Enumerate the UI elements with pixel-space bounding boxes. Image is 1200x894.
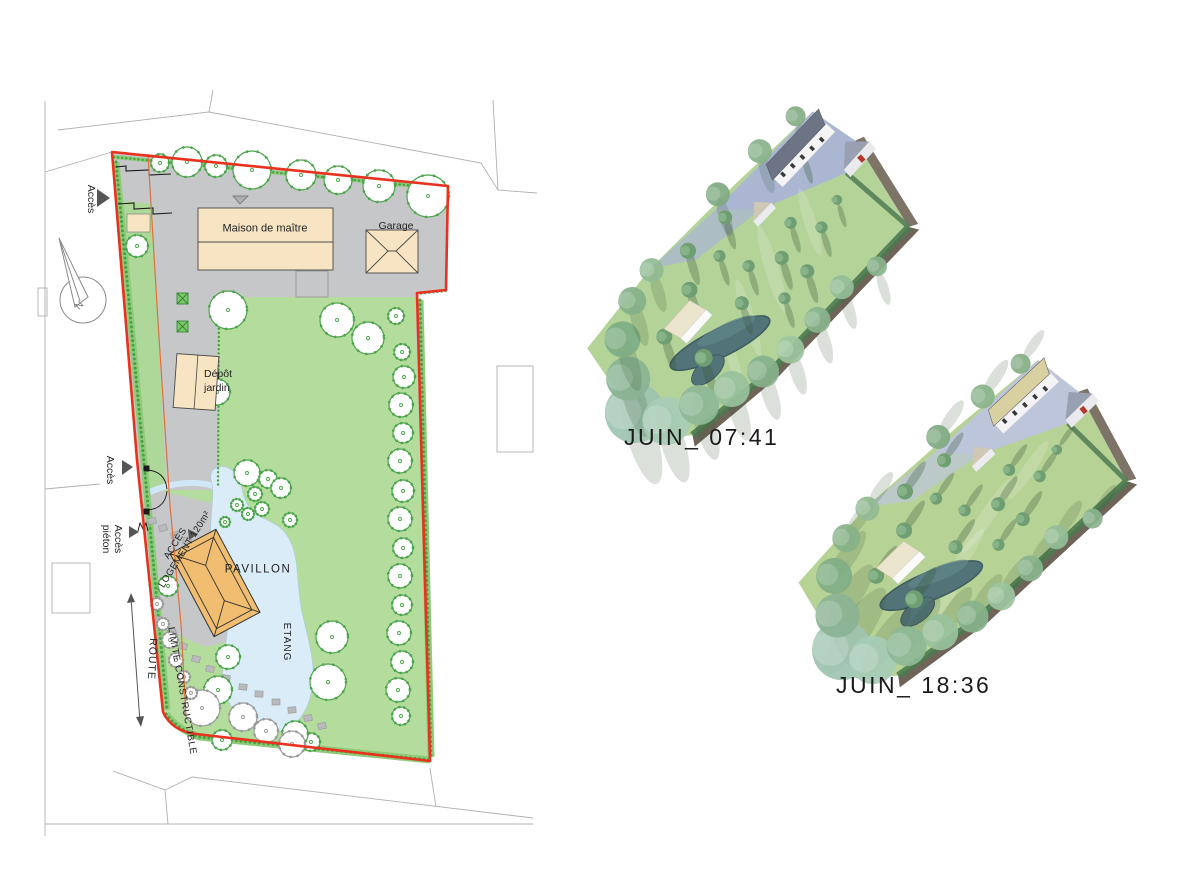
label-acces-top: Accès: [85, 185, 97, 214]
label-acces-pieton: Accès piéton: [100, 525, 124, 554]
label-juin-1836: JUIN_ 18:36: [836, 672, 991, 699]
access-arrow-icon: [129, 526, 139, 538]
label-route: ROUTE: [145, 638, 159, 680]
render-morning: [519, 83, 969, 520]
label-etang: ETANG: [280, 623, 292, 662]
access-arrow-icon: [122, 460, 133, 475]
label-garage: Garage: [378, 220, 413, 232]
site-plan-svg: [0, 0, 1200, 894]
label-maison-de-maitre: Maison de maître: [223, 223, 308, 236]
small-shed: [127, 214, 150, 232]
label-acces-middle: Accès: [104, 456, 116, 485]
access-arrow-icon: [97, 189, 110, 207]
label-juin-0741: JUIN_ 07:41: [624, 424, 779, 451]
label-depot-jardin: Dépôt jardin: [204, 367, 232, 395]
garage-building: [366, 230, 418, 273]
route-arrow: [127, 593, 144, 727]
label-pavillon: PAVILLON: [225, 563, 292, 576]
presentation-sheet: Maison de maître Garage Dépôt jardin PAV…: [0, 0, 1200, 894]
